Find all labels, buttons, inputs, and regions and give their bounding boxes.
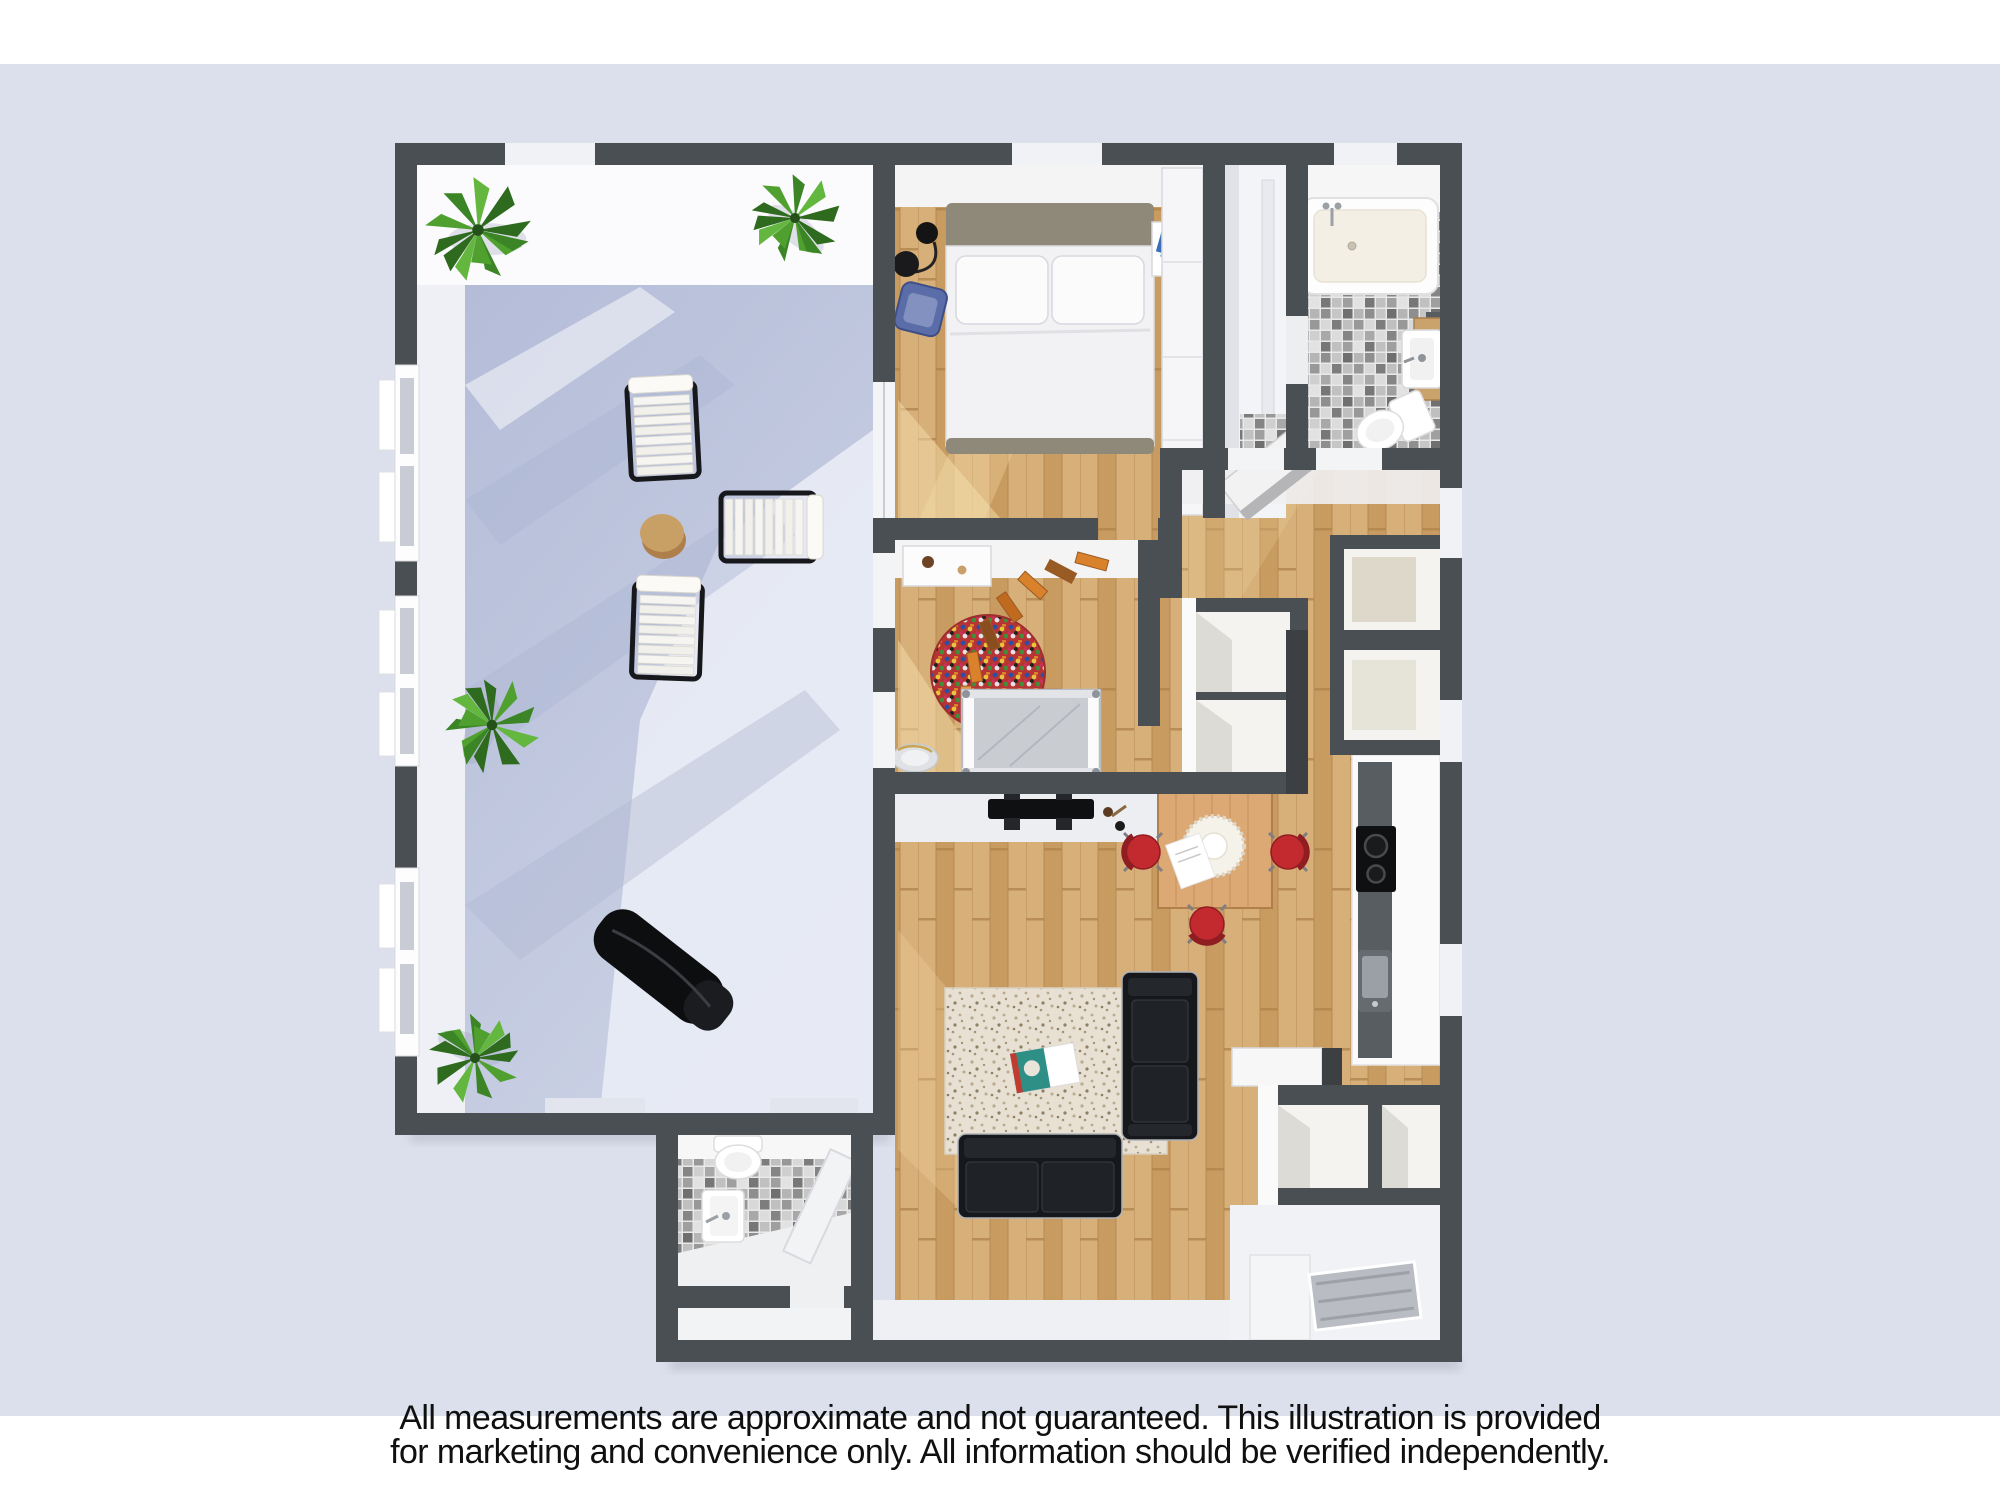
door-opening: [1286, 316, 1308, 384]
railing-glass: [400, 882, 414, 950]
faucet-icon: [1418, 354, 1426, 362]
wall-left: [395, 165, 417, 365]
door-sill: [545, 1098, 645, 1113]
lounge-chair: [721, 493, 823, 561]
wall-terrace-bottom: [395, 1113, 895, 1135]
faucet-icon: [722, 1212, 730, 1220]
bathroom-sink: [702, 1190, 744, 1242]
window-opening: [1334, 143, 1397, 165]
tall-cabinet: [1286, 630, 1308, 794]
entry-closet: [1258, 1085, 1462, 1205]
wall-terrace-divider: [873, 143, 895, 1135]
wall-guest-bath-right: [851, 1113, 873, 1362]
railing-glass: [400, 466, 414, 546]
wall-guest-bath-left: [656, 1113, 678, 1362]
cooktop: [1356, 826, 1396, 892]
bathroom: [1302, 165, 1444, 460]
terrace: [416, 153, 873, 1117]
wall-bottom: [656, 1340, 1462, 1362]
guest-bathroom: [678, 1135, 858, 1340]
bathroom-sink: [1402, 318, 1444, 400]
lounge-chair: [631, 575, 703, 679]
disclaimer-line-1: All measurements are approximate and not…: [0, 1401, 2000, 1435]
decor-item: [1115, 821, 1125, 831]
door-opening: [1316, 448, 1382, 470]
wall-corridor-stub: [1160, 470, 1182, 598]
pet-bed: [892, 744, 938, 772]
floor-plan-illustration: [0, 0, 2000, 1500]
faucet-icon: [1323, 203, 1330, 210]
drain-icon: [1348, 242, 1356, 250]
entry: [1230, 1205, 1440, 1340]
kitchen-sink: [1358, 950, 1392, 1012]
bathtub: [1302, 198, 1438, 294]
double-bed: [946, 203, 1154, 454]
crib: [962, 690, 1100, 776]
changing-table: [903, 546, 991, 586]
door-sill: [770, 1098, 858, 1113]
window-opening: [873, 692, 895, 768]
decor-item: [1103, 807, 1113, 817]
railing-glass: [400, 964, 414, 1034]
leather-sofa-vertical: [1122, 972, 1198, 1140]
page: All measurements are approximate and not…: [0, 0, 2000, 1500]
oven-front: [1322, 1048, 1342, 1086]
disclaimer-line-2: for marketing and convenience only. All …: [0, 1435, 2000, 1469]
top-white-band: [0, 0, 2000, 64]
railing-glass: [400, 688, 414, 754]
toilet: [714, 1136, 762, 1179]
kitchen-cabinet: [1232, 1048, 1322, 1086]
faucet-icon: [1372, 1001, 1378, 1007]
blue-armchair: [893, 280, 949, 338]
door-opening: [1228, 448, 1284, 470]
railing-glass: [400, 608, 414, 674]
guest-bath-wall-face: [678, 1135, 851, 1161]
window-opening: [873, 553, 895, 628]
kitchen-counter: [1352, 755, 1440, 1065]
guest-bath-vestibule: [678, 1308, 851, 1340]
window-opening: [1440, 944, 1462, 1016]
leather-sofa-horizontal: [958, 1134, 1122, 1218]
door-opening: [790, 1286, 844, 1308]
window-opening: [1440, 700, 1462, 762]
wall-bath-bottom: [1160, 448, 1462, 470]
entrance-mat: [1309, 1262, 1421, 1331]
entry-step: [1250, 1255, 1310, 1340]
window-opening: [1440, 488, 1462, 558]
disclaimer: All measurements are approximate and not…: [0, 1401, 2000, 1469]
pillow: [1052, 256, 1144, 324]
wall-left: [395, 766, 417, 868]
wall-left: [395, 561, 417, 596]
window-opening: [505, 143, 595, 165]
pillow: [956, 256, 1048, 324]
bedroom-wall-face: [895, 165, 1203, 207]
window-opening: [1012, 143, 1102, 165]
door-opening: [1098, 518, 1158, 540]
wall-living-top: [873, 772, 1308, 794]
terrace-door-openings: [873, 382, 895, 768]
railing-glass: [400, 378, 414, 454]
floor-transition: [873, 1300, 1230, 1340]
dining-table: [1158, 792, 1272, 908]
